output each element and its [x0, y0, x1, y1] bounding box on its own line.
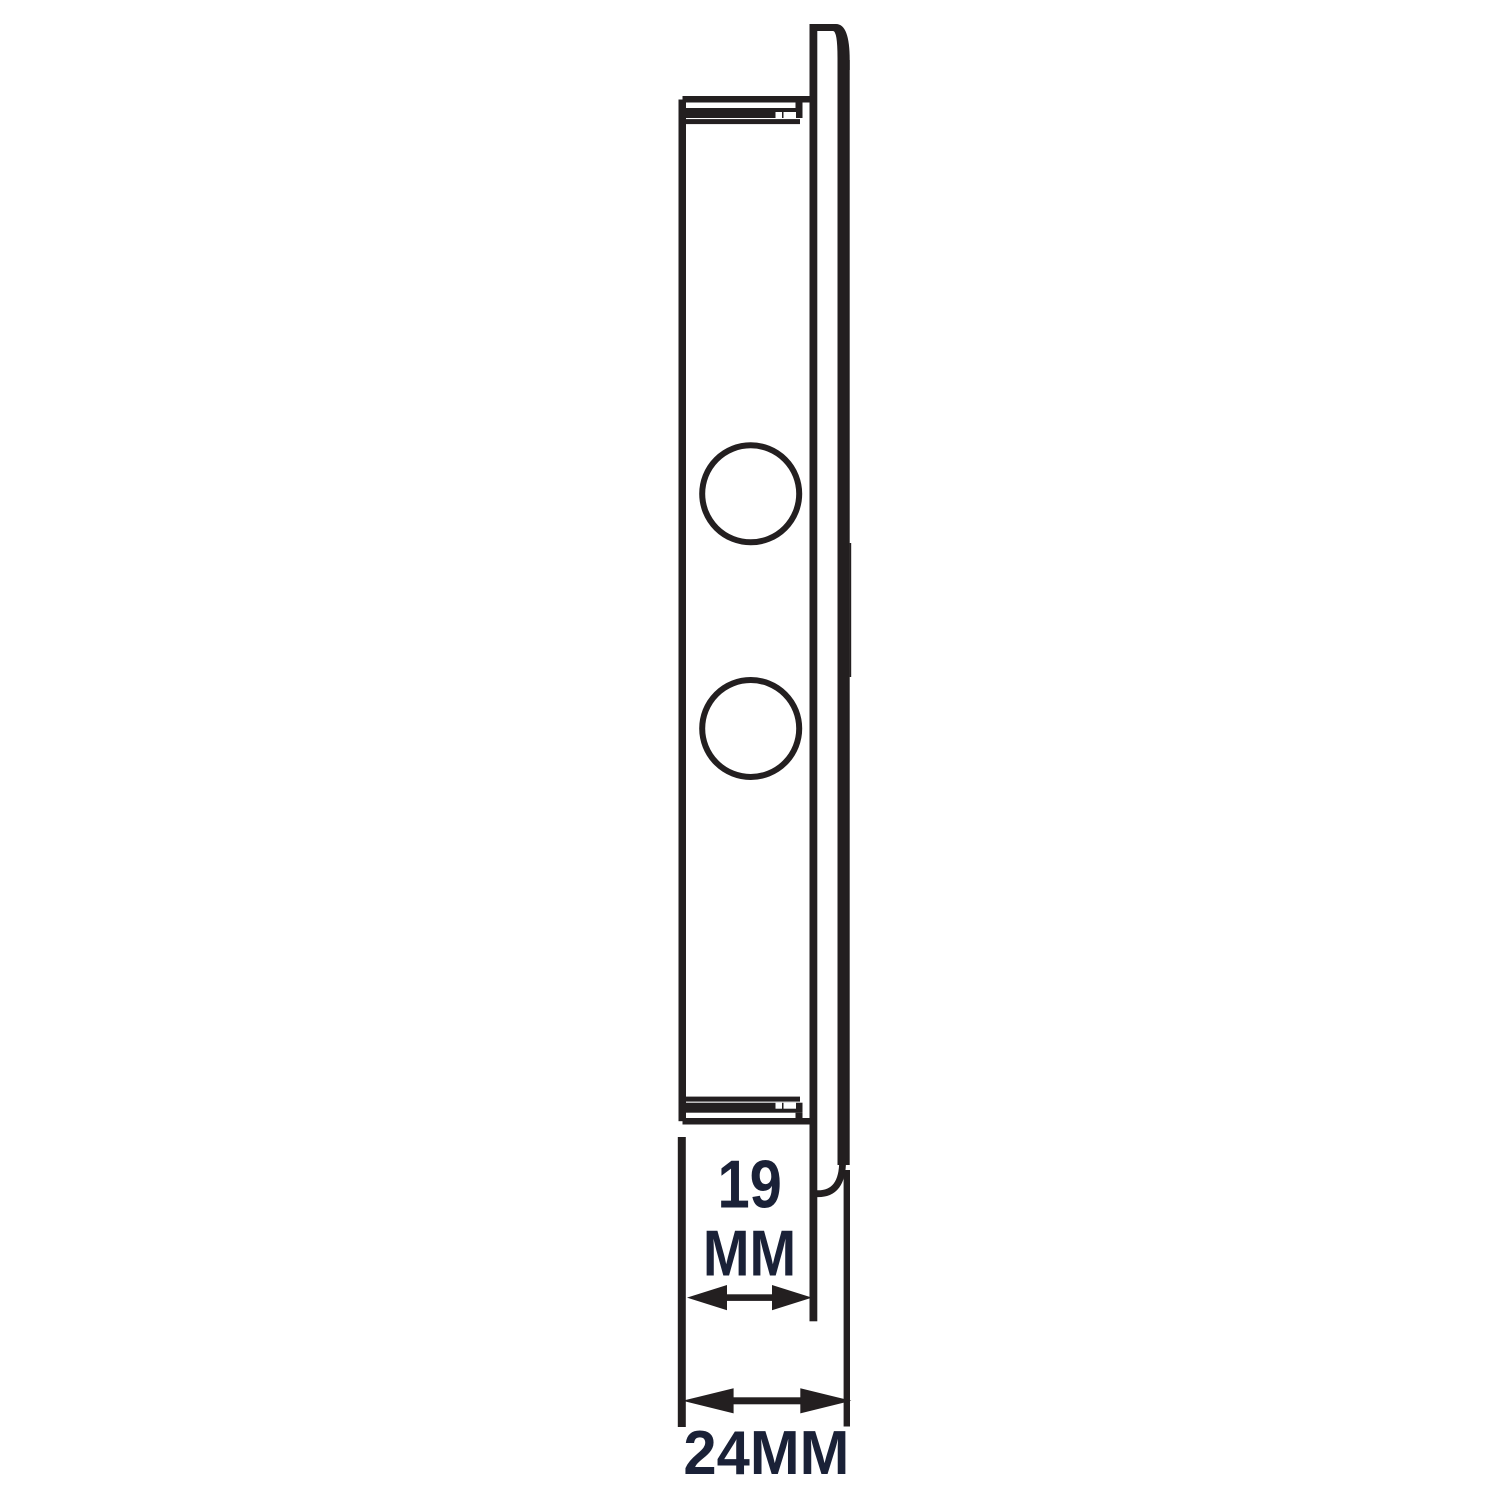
svg-text:19: 19: [717, 1147, 781, 1222]
svg-text:24MM: 24MM: [683, 1418, 849, 1487]
svg-text:MM: MM: [703, 1217, 796, 1290]
